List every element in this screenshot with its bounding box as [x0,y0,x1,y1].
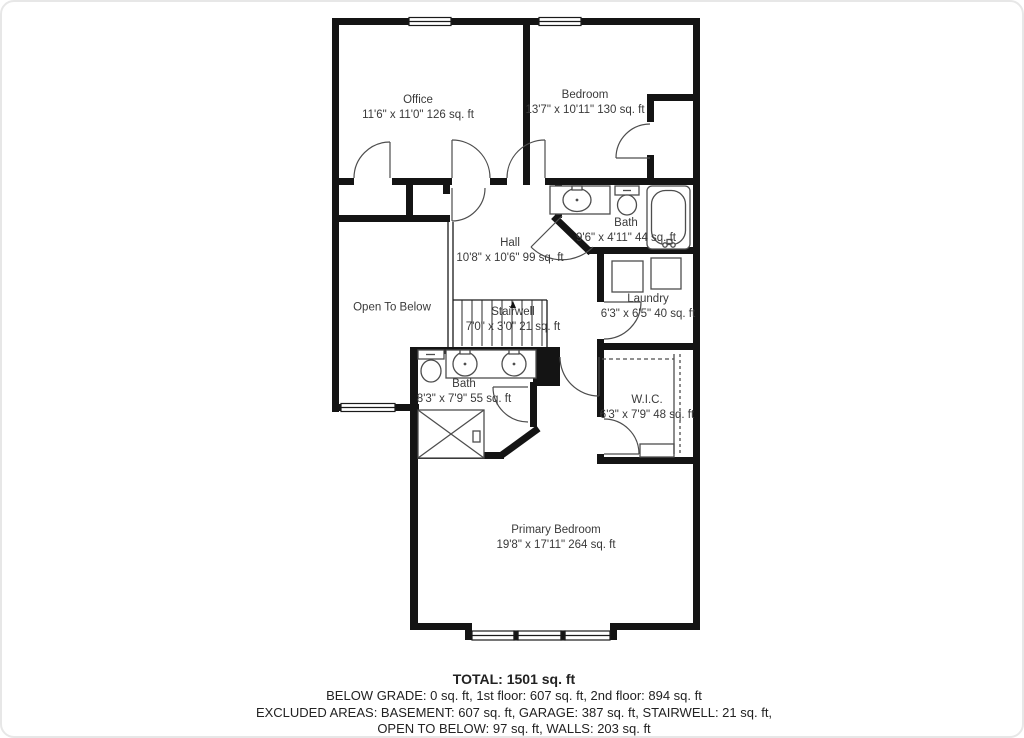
upper-bath-toilet [615,186,639,215]
hall-name: Hall [456,236,563,251]
room-label-hall: Hall 10'8" x 10'6" 99 sq. ft [456,236,563,266]
room-label-open-to-below: Open To Below [353,301,431,316]
room-label-wic: W.I.C. 6'3" x 7'9" 48 sq. ft [600,393,694,423]
shower [418,410,484,458]
primary-bedroom-name: Primary Bedroom [496,523,615,538]
floorplan-card: Office 11'6" x 11'0" 126 sq. ft Bedroom … [0,0,1024,738]
room-label-upper-bath: Bath 9'6" x 4'11" 44 sq. ft [576,216,676,246]
room-label-bedroom: Bedroom 13'7" x 10'11" 130 sq. ft [525,88,644,118]
room-label-stairwell: Stairwell 7'0" x 3'0" 21 sq. ft [466,305,560,335]
area-summary: TOTAL: 1501 sq. ft BELOW GRADE: 0 sq. ft… [2,670,1024,738]
open-to-below-name: Open To Below [353,301,431,316]
office-door-left [354,142,390,178]
excluded-areas-line-1: EXCLUDED AREAS: BASEMENT: 607 sq. ft, GA… [2,705,1024,722]
bedroom-name: Bedroom [525,88,644,103]
bedroom-dims: 13'7" x 10'11" 130 sq. ft [525,103,644,118]
hall-dims: 10'8" x 10'6" 99 sq. ft [456,251,563,266]
floor-areas-line: BELOW GRADE: 0 sq. ft, 1st floor: 607 sq… [2,688,1024,705]
laundry-name: Laundry [601,292,695,307]
total-area: TOTAL: 1501 sq. ft [2,670,1024,688]
lower-bath-dims: 8'3" x 7'9" 55 sq. ft [417,392,511,407]
bedroom-closet-door [616,124,650,158]
room-label-lower-bath: Bath 8'3" x 7'9" 55 sq. ft [417,377,511,407]
hall-corridor-door [452,188,485,221]
excluded-areas-line-2: OPEN TO BELOW: 97 sq. ft, WALLS: 203 sq.… [2,721,1024,738]
stairwell-dims: 7'0" x 3'0" 21 sq. ft [466,320,560,335]
office-door-right [452,140,490,178]
room-label-office: Office 11'6" x 11'0" 126 sq. ft [362,93,474,123]
laundry-dims: 6'3" x 6'5" 40 sq. ft [601,307,695,322]
room-label-laundry: Laundry 6'3" x 6'5" 40 sq. ft [601,292,695,322]
primary-bedroom-door [560,357,599,396]
lower-bath-name: Bath [417,377,511,392]
washer-dryer [612,258,681,292]
stairwell-name: Stairwell [466,305,560,320]
wic-door [604,419,639,454]
wic-name: W.I.C. [600,393,694,408]
room-label-primary-bedroom: Primary Bedroom 19'8" x 17'11" 264 sq. f… [496,523,615,553]
upper-bath-name: Bath [576,216,676,231]
office-name: Office [362,93,474,108]
upper-bath-dims: 9'6" x 4'11" 44 sq. ft [576,231,676,246]
floorplan-drawing [2,2,1024,738]
wic-dims: 6'3" x 7'9" 48 sq. ft [600,408,694,423]
office-dims: 11'6" x 11'0" 126 sq. ft [362,108,474,123]
upper-bath-vanity-sink [550,186,610,214]
lower-bath-double-vanity [446,350,536,378]
primary-bedroom-dims: 19'8" x 17'11" 264 sq. ft [496,538,615,553]
